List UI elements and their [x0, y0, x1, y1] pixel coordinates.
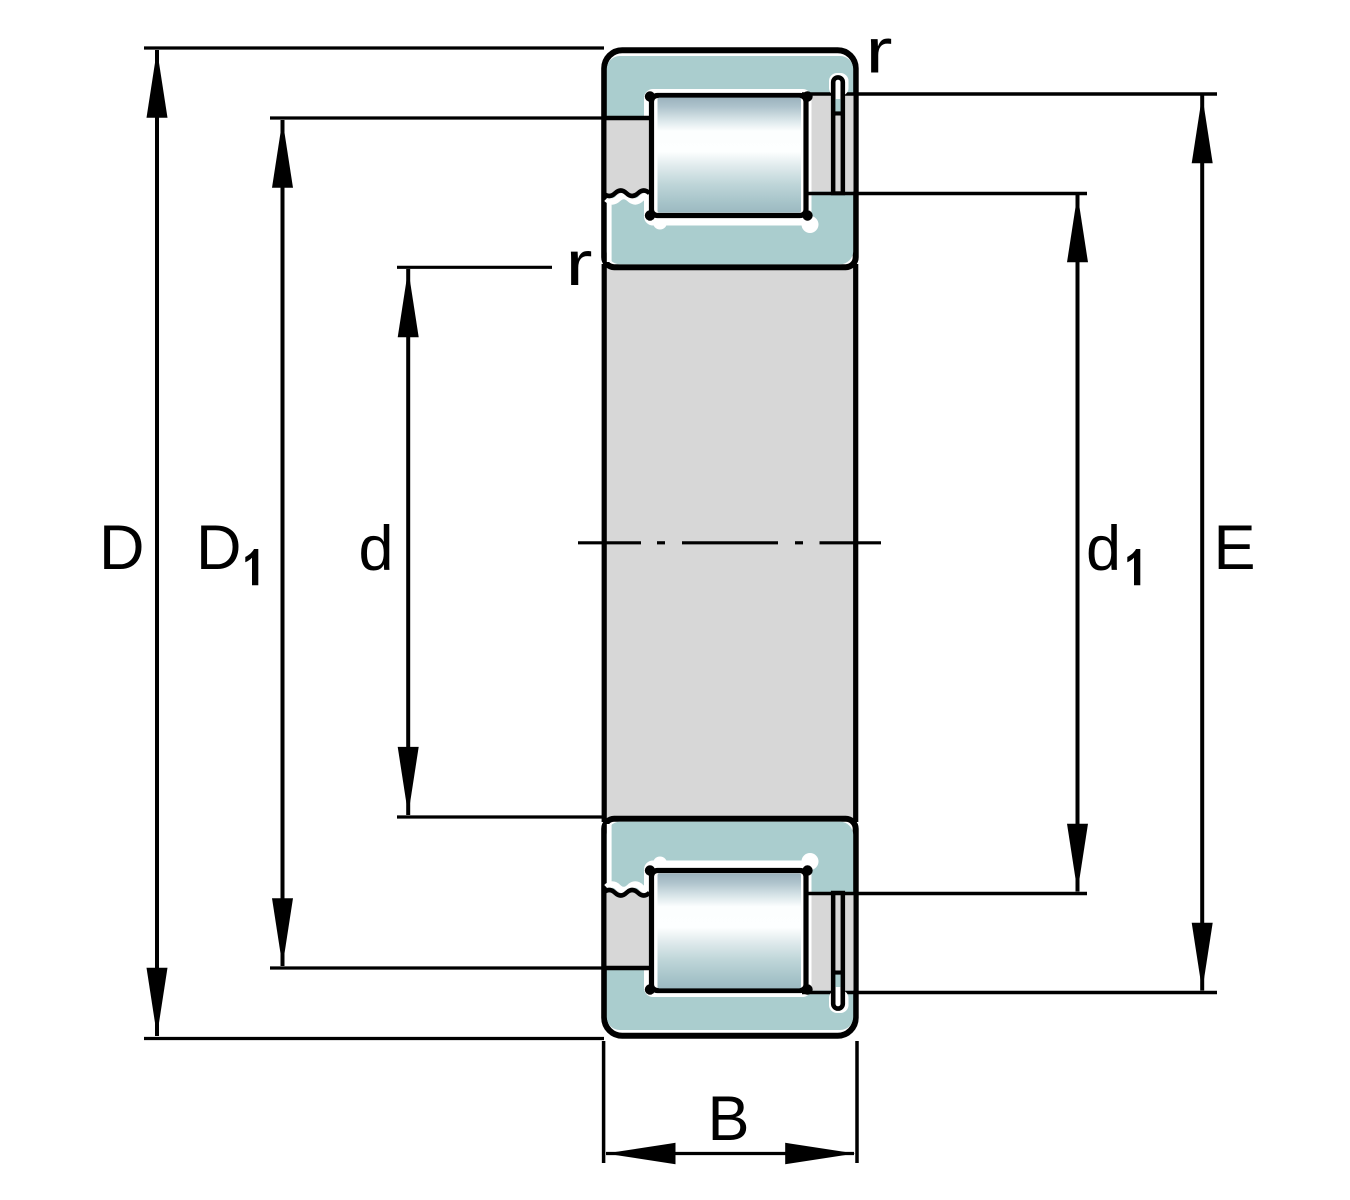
svg-text:D: D: [196, 513, 242, 583]
svg-text:B: B: [708, 1084, 750, 1154]
svg-text:r: r: [566, 229, 593, 299]
svg-text:d: d: [359, 514, 394, 584]
svg-text:E: E: [1214, 513, 1256, 583]
svg-text:r: r: [866, 17, 893, 87]
svg-text:d: d: [1086, 514, 1121, 584]
svg-text:D: D: [99, 513, 145, 583]
